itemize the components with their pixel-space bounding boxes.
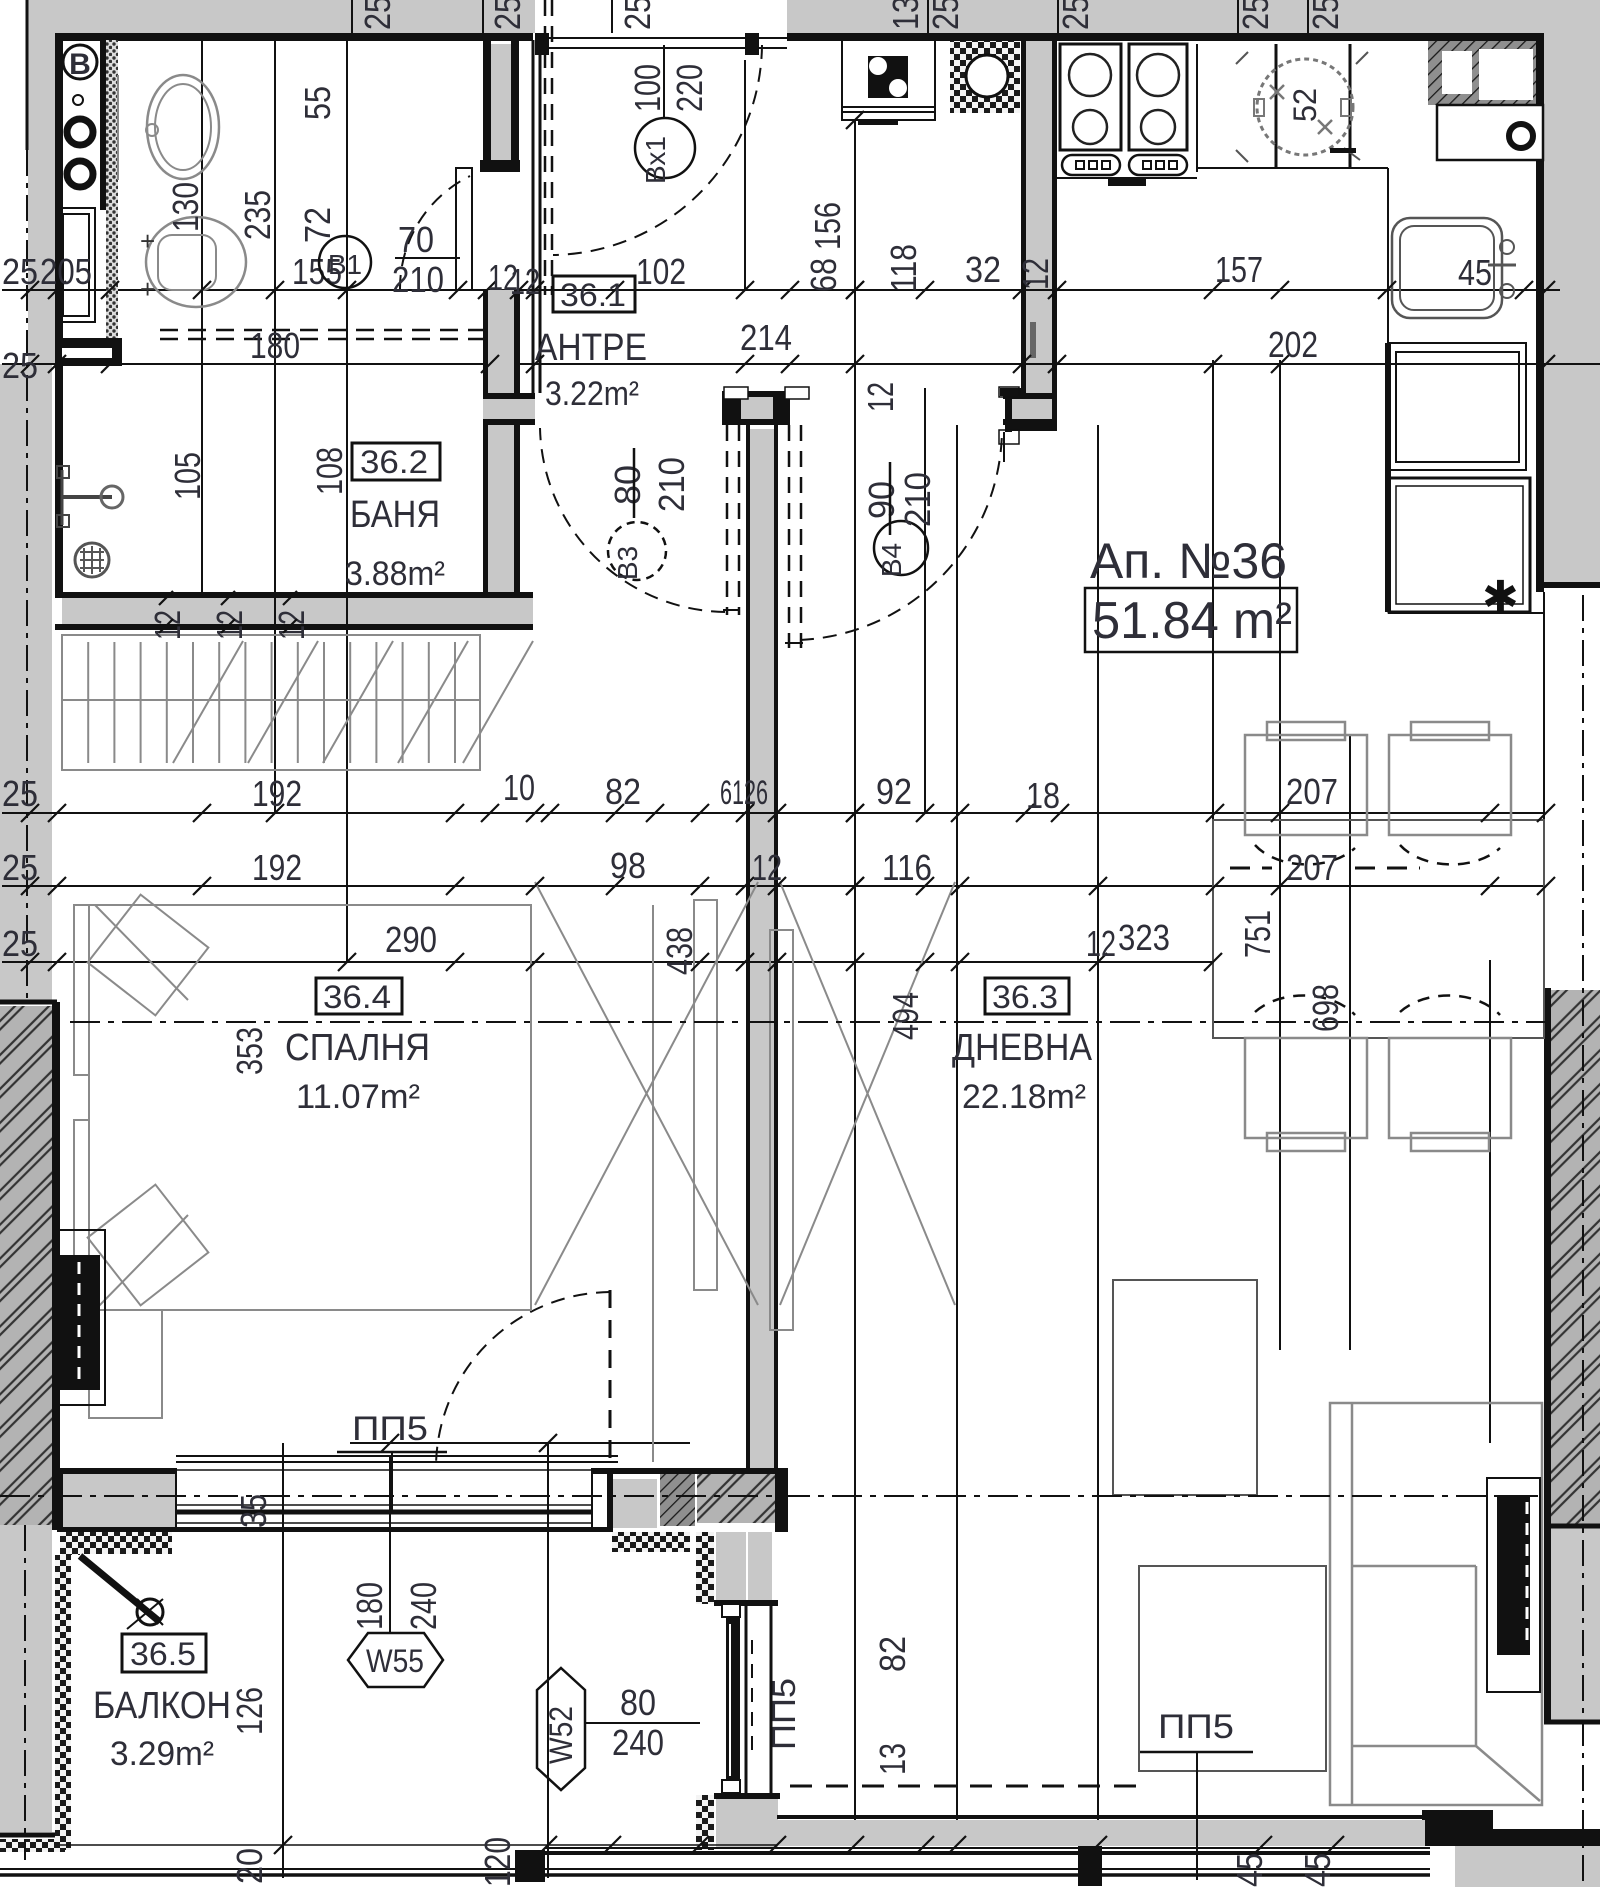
svg-text:192: 192 xyxy=(252,773,302,814)
svg-text:120: 120 xyxy=(477,1837,518,1887)
svg-text:180: 180 xyxy=(349,1582,390,1630)
svg-text:36.3: 36.3 xyxy=(992,979,1058,1015)
svg-text:80: 80 xyxy=(607,465,648,505)
svg-text:72: 72 xyxy=(297,207,338,243)
svg-text:90: 90 xyxy=(861,481,902,519)
svg-text:12: 12 xyxy=(1015,258,1056,290)
svg-text:290: 290 xyxy=(385,919,437,960)
svg-text:25: 25 xyxy=(1305,0,1346,30)
svg-text:25: 25 xyxy=(2,923,38,964)
svg-text:6126: 6126 xyxy=(720,774,768,812)
svg-text:СПАЛНЯ: СПАЛНЯ xyxy=(285,1027,430,1069)
svg-text:45: 45 xyxy=(1229,1853,1270,1887)
svg-text:51.84 m²: 51.84 m² xyxy=(1092,592,1292,650)
svg-text:45: 45 xyxy=(1458,252,1492,293)
svg-text:108: 108 xyxy=(309,447,350,495)
svg-text:207: 207 xyxy=(1286,847,1338,888)
svg-text:B4: B4 xyxy=(876,543,907,577)
svg-text:92: 92 xyxy=(876,771,912,812)
svg-text:3.29m²: 3.29m² xyxy=(110,1735,214,1773)
svg-text:25: 25 xyxy=(2,251,38,292)
svg-text:БАНЯ: БАНЯ xyxy=(350,494,440,536)
svg-text:102: 102 xyxy=(636,251,686,292)
svg-text:214: 214 xyxy=(740,317,792,358)
svg-text:W55: W55 xyxy=(366,1643,424,1679)
svg-text:52: 52 xyxy=(1287,88,1323,122)
svg-text:45: 45 xyxy=(1297,1853,1338,1887)
svg-text:100: 100 xyxy=(627,64,668,112)
svg-text:12: 12 xyxy=(752,847,782,888)
svg-text:35: 35 xyxy=(233,1494,274,1528)
svg-text:36.1: 36.1 xyxy=(560,277,626,313)
svg-text:25: 25 xyxy=(2,773,38,814)
svg-text:36.5: 36.5 xyxy=(130,1636,196,1672)
svg-text:10: 10 xyxy=(503,767,535,808)
svg-text:205: 205 xyxy=(40,251,92,292)
svg-text:25: 25 xyxy=(487,0,528,30)
svg-text:12: 12 xyxy=(1086,923,1116,964)
svg-text:180: 180 xyxy=(250,325,300,366)
svg-text:Ап. №36: Ап. №36 xyxy=(1090,533,1287,589)
svg-text:25: 25 xyxy=(925,0,966,30)
svg-text:207: 207 xyxy=(1286,771,1338,812)
svg-text:494: 494 xyxy=(885,992,926,1040)
svg-text:25: 25 xyxy=(1235,0,1276,30)
svg-text:12: 12 xyxy=(510,261,540,302)
svg-text:438: 438 xyxy=(659,927,700,975)
svg-text:240: 240 xyxy=(612,1722,664,1763)
svg-text:220: 220 xyxy=(669,64,710,112)
svg-text:36.2: 36.2 xyxy=(360,444,428,480)
svg-text:✱: ✱ xyxy=(1482,573,1519,622)
svg-text:116: 116 xyxy=(882,847,932,888)
svg-text:20: 20 xyxy=(229,1848,270,1884)
svg-text:Вх1: Вх1 xyxy=(640,136,671,184)
svg-text:36.4: 36.4 xyxy=(323,979,391,1015)
svg-text:157: 157 xyxy=(1215,249,1263,290)
svg-text:156: 156 xyxy=(807,202,848,250)
svg-text:B1: B1 xyxy=(328,249,362,280)
svg-text:ПП5: ПП5 xyxy=(1158,1708,1234,1746)
svg-text:210: 210 xyxy=(897,472,938,527)
svg-text:192: 192 xyxy=(252,847,302,888)
svg-text:98: 98 xyxy=(610,845,646,886)
svg-text:118: 118 xyxy=(883,244,924,292)
svg-text:210: 210 xyxy=(392,259,444,300)
svg-text:32: 32 xyxy=(965,249,1001,290)
svg-text:13: 13 xyxy=(885,0,926,30)
svg-text:82: 82 xyxy=(605,771,641,812)
svg-text:751: 751 xyxy=(1237,910,1278,958)
svg-text:698: 698 xyxy=(1305,984,1346,1032)
svg-text:25: 25 xyxy=(2,847,38,888)
svg-text:ДНЕВНА: ДНЕВНА xyxy=(952,1027,1093,1069)
svg-text:210: 210 xyxy=(651,457,692,512)
svg-text:12: 12 xyxy=(860,382,901,412)
svg-text:БАЛКОН: БАЛКОН xyxy=(93,1685,231,1727)
svg-text:25: 25 xyxy=(1055,0,1096,30)
svg-text:+: + xyxy=(140,226,155,256)
svg-text:25: 25 xyxy=(357,0,398,30)
svg-text:240: 240 xyxy=(403,1582,444,1630)
svg-text:25: 25 xyxy=(617,0,658,30)
svg-text:13: 13 xyxy=(872,1743,913,1775)
svg-text:11.07m²: 11.07m² xyxy=(296,1078,420,1116)
svg-text:W52: W52 xyxy=(543,1706,579,1764)
svg-text:55: 55 xyxy=(297,86,338,120)
svg-text:3.22m²: 3.22m² xyxy=(545,375,639,413)
svg-text:202: 202 xyxy=(1268,324,1318,365)
svg-text:130: 130 xyxy=(165,182,206,232)
svg-text:82: 82 xyxy=(872,1636,913,1672)
svg-text:25: 25 xyxy=(2,345,38,386)
svg-text:80: 80 xyxy=(620,1682,656,1723)
svg-text:323: 323 xyxy=(1118,917,1170,958)
svg-text:235: 235 xyxy=(237,190,278,240)
svg-text:18: 18 xyxy=(1026,775,1060,816)
svg-text:68: 68 xyxy=(803,258,844,292)
svg-text:ПП5: ПП5 xyxy=(352,1410,428,1448)
svg-text:B3: B3 xyxy=(612,546,643,580)
svg-text:105: 105 xyxy=(167,452,208,500)
svg-text:B: B xyxy=(69,48,91,81)
svg-text:+: + xyxy=(140,274,155,304)
svg-text:АНТРЕ: АНТРЕ xyxy=(535,327,647,369)
svg-text:3.88m²: 3.88m² xyxy=(345,555,445,593)
svg-text:70: 70 xyxy=(398,219,434,260)
svg-text:353: 353 xyxy=(229,1027,270,1075)
svg-text:22.18m²: 22.18m² xyxy=(962,1078,1086,1116)
svg-text:126: 126 xyxy=(229,1687,270,1735)
